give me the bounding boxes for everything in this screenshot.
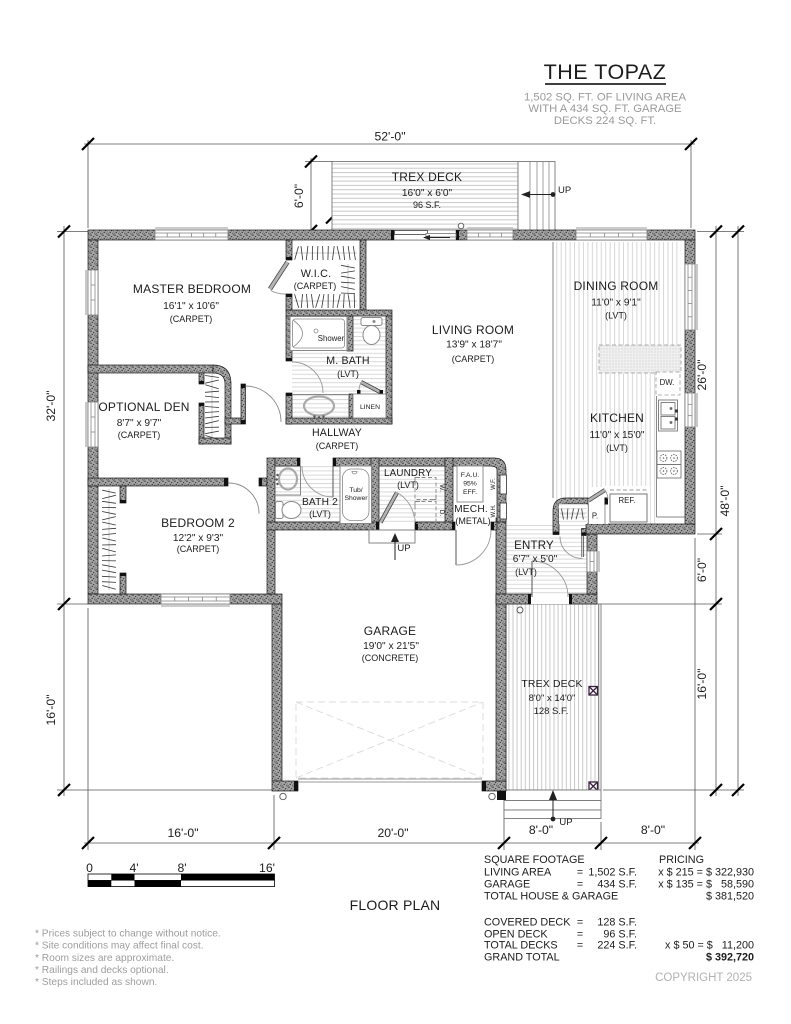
svg-text:GRAND TOTAL: GRAND TOTAL: [484, 952, 560, 964]
svg-text:LAUNDRY: LAUNDRY: [384, 468, 432, 479]
svg-text:LIVING ROOM: LIVING ROOM: [432, 323, 514, 337]
svg-text:COVERED DECK: COVERED DECK: [484, 917, 571, 929]
svg-text:6'7" x 5'0": 6'7" x 5'0": [513, 554, 558, 565]
svg-text:=: =: [577, 940, 583, 952]
svg-text:$ 381,520: $ 381,520: [706, 891, 754, 903]
svg-text:96 S.F.: 96 S.F.: [413, 200, 441, 210]
svg-text:* Railings and decks optional.: * Railings and decks optional.: [35, 965, 169, 976]
svg-text:4': 4': [129, 861, 138, 875]
svg-text:32'-0": 32'-0": [44, 390, 58, 421]
svg-text:95%: 95%: [463, 481, 477, 488]
svg-text:ENTRY: ENTRY: [514, 540, 554, 552]
svg-text:8': 8': [177, 861, 186, 875]
svg-text:DECKS 224 SQ. FT.: DECKS 224 SQ. FT.: [554, 115, 656, 127]
svg-text:W.I.C.: W.I.C.: [301, 268, 332, 280]
svg-text:128 S.F.: 128 S.F.: [534, 706, 569, 717]
svg-text:SQUARE FOOTAGE: SQUARE FOOTAGE: [484, 854, 585, 866]
svg-text:HALLWAY: HALLWAY: [312, 427, 362, 439]
svg-text:(CARPET): (CARPET): [294, 281, 337, 291]
svg-text:LINEN: LINEN: [360, 404, 380, 411]
svg-text:(CONCRETE): (CONCRETE): [362, 653, 419, 663]
svg-text:LIVING AREA: LIVING AREA: [484, 867, 552, 879]
svg-text:12'2" x 9'3": 12'2" x 9'3": [173, 533, 224, 544]
svg-text:GARAGE: GARAGE: [364, 624, 417, 638]
svg-text:16'-0": 16'-0": [167, 826, 198, 840]
svg-text:TOTAL DECKS: TOTAL DECKS: [484, 940, 558, 952]
svg-text:D.: D.: [438, 510, 445, 517]
svg-text:BATH 2: BATH 2: [302, 497, 338, 508]
svg-text:434 S.F.: 434 S.F.: [597, 879, 637, 891]
svg-text:OPTIONAL DEN: OPTIONAL DEN: [98, 400, 189, 414]
svg-text:UP: UP: [559, 817, 572, 828]
svg-text:20'-0": 20'-0": [377, 826, 408, 840]
svg-text:COPYRIGHT 2025: COPYRIGHT 2025: [655, 972, 752, 984]
svg-text:(LVT): (LVT): [606, 443, 628, 453]
svg-text:0: 0: [86, 861, 93, 875]
svg-text:8'0" x 14'0": 8'0" x 14'0": [529, 693, 576, 704]
svg-text:FLOOR PLAN: FLOOR PLAN: [350, 897, 441, 913]
svg-text:REF.: REF.: [619, 496, 636, 505]
svg-text:Tub/: Tub/: [349, 487, 362, 494]
svg-text:DINING ROOM: DINING ROOM: [574, 279, 659, 293]
svg-text:8'7" x 9'7": 8'7" x 9'7": [117, 418, 162, 429]
svg-text:(METAL): (METAL): [455, 516, 490, 526]
svg-text:1,502 S.F.: 1,502 S.F.: [588, 867, 637, 879]
svg-text:TREX DECK: TREX DECK: [521, 679, 582, 690]
svg-text:THE TOPAZ: THE TOPAZ: [544, 60, 667, 84]
svg-text:UP: UP: [397, 543, 410, 554]
svg-text:* Prices subject to change wit: * Prices subject to change without notic…: [35, 929, 221, 940]
svg-text:(CARPET): (CARPET): [177, 544, 220, 554]
svg-text:16'-0": 16'-0": [695, 668, 709, 699]
svg-text:(CARPET): (CARPET): [118, 430, 161, 440]
svg-text:DW.: DW.: [660, 378, 675, 387]
svg-text:(LVT): (LVT): [309, 509, 331, 519]
svg-text:(CARPET): (CARPET): [170, 314, 213, 324]
svg-text:W.F.: W.F.: [491, 478, 497, 490]
svg-text:W.H.: W.H.: [491, 504, 497, 517]
svg-text:BEDROOM 2: BEDROOM 2: [161, 516, 235, 530]
svg-text:x $ 135 = $ 58,590: x $ 135 = $ 58,590: [658, 879, 754, 891]
svg-text:PRICING: PRICING: [659, 854, 704, 866]
svg-text:GARAGE: GARAGE: [484, 879, 530, 891]
svg-text:(LVT): (LVT): [515, 567, 537, 577]
svg-text:13'9" x 18'7": 13'9" x 18'7": [446, 340, 502, 351]
svg-text:6'-0": 6'-0": [695, 558, 709, 582]
svg-text:EFF.: EFF.: [463, 489, 477, 496]
svg-text:8'-0": 8'-0": [641, 823, 665, 837]
svg-text:$ 392,720: $ 392,720: [706, 952, 754, 964]
svg-text:52'-0": 52'-0": [374, 130, 405, 144]
svg-text:(CARPET): (CARPET): [316, 441, 359, 451]
svg-text:MASTER BEDROOM: MASTER BEDROOM: [133, 282, 251, 296]
svg-text:(CARPET): (CARPET): [452, 354, 495, 364]
svg-text:26'-0": 26'-0": [695, 359, 709, 390]
svg-text:(LVT): (LVT): [337, 369, 359, 379]
svg-text:=: =: [577, 917, 583, 929]
svg-text:TOTAL HOUSE & GARAGE: TOTAL HOUSE & GARAGE: [484, 891, 618, 903]
svg-text:(LVT): (LVT): [397, 480, 419, 490]
svg-text:* Steps included as shown.: * Steps included as shown.: [35, 977, 157, 988]
svg-text:WITH A 434 SQ. FT. GARAGE: WITH A 434 SQ. FT. GARAGE: [528, 103, 682, 115]
svg-text:11'0" x 15'0": 11'0" x 15'0": [589, 430, 644, 441]
svg-text:x $ 50 = $ 11,200: x $ 50 = $ 11,200: [665, 940, 754, 952]
svg-text:F.A.U.: F.A.U.: [461, 472, 480, 479]
svg-text:Shower: Shower: [318, 334, 345, 343]
svg-text:x $ 215 = $ 322,930: x $ 215 = $ 322,930: [658, 867, 754, 879]
svg-text:Shower: Shower: [344, 495, 368, 502]
svg-text:16'-0": 16'-0": [44, 694, 58, 725]
svg-text:MECH.: MECH.: [454, 504, 488, 515]
svg-text:* Site conditions may affect f: * Site conditions may affect final cost.: [35, 941, 204, 952]
svg-text:=: =: [577, 867, 583, 879]
svg-text:16'1" x 10'6": 16'1" x 10'6": [163, 301, 219, 312]
svg-text:* Room sizes are approximate.: * Room sizes are approximate.: [35, 953, 174, 964]
svg-text:TREX DECK: TREX DECK: [392, 170, 462, 184]
svg-text:16'0" x 6'0": 16'0" x 6'0": [402, 188, 453, 199]
svg-text:11'0" x 9'1": 11'0" x 9'1": [591, 298, 641, 309]
svg-text:P.: P.: [592, 512, 598, 521]
svg-text:M. BATH: M. BATH: [326, 355, 370, 367]
svg-text:48'-0": 48'-0": [718, 485, 732, 516]
svg-text:16': 16': [259, 861, 275, 875]
svg-text:1,502 SQ. FT. OF LIVING AREA: 1,502 SQ. FT. OF LIVING AREA: [524, 92, 686, 104]
svg-text:6'-0": 6'-0": [292, 184, 306, 208]
svg-text:8'-0": 8'-0": [529, 823, 553, 837]
svg-text:UP: UP: [558, 185, 571, 196]
svg-text:224 S.F.: 224 S.F.: [597, 940, 637, 952]
svg-text:19'0" x 21'5": 19'0" x 21'5": [363, 641, 419, 652]
svg-text:KITCHEN: KITCHEN: [590, 411, 644, 425]
svg-text:(LVT): (LVT): [605, 311, 627, 321]
svg-text:=: =: [577, 879, 583, 891]
svg-text:W.: W.: [438, 484, 445, 492]
svg-text:128 S.F.: 128 S.F.: [597, 917, 637, 929]
